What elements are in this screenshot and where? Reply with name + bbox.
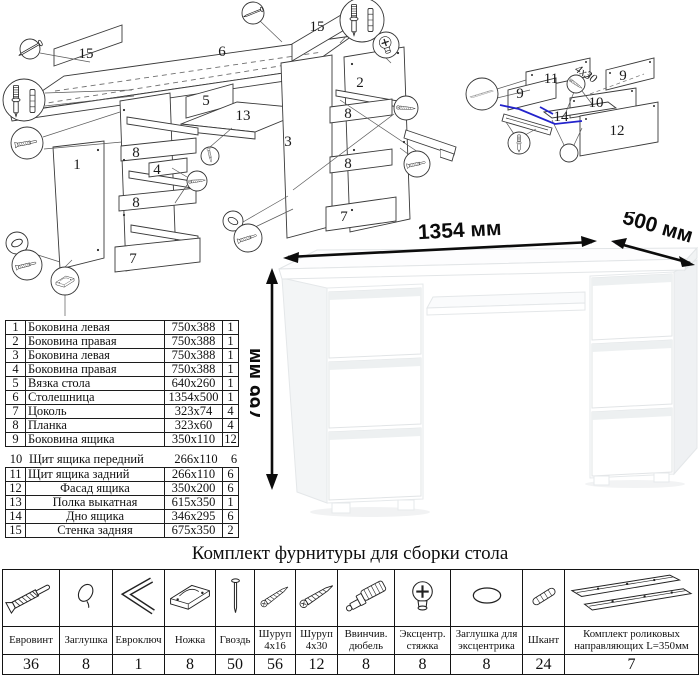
hex-key-icon xyxy=(118,575,160,617)
euro-screw-icon xyxy=(2,574,59,617)
screw-4x30-icon xyxy=(297,579,338,611)
screw-4x16-icon xyxy=(258,581,293,610)
part-qty: 1 xyxy=(223,363,239,377)
table-row: 10 Щит ящика передний 266x110 6 xyxy=(5,452,245,467)
part-name: Фасад ящика xyxy=(26,482,165,496)
table-row: 2Боковина правая750x3881 xyxy=(6,335,239,349)
sleeve-icon xyxy=(368,8,373,31)
screw-dowel-icon xyxy=(339,575,392,615)
hardware-icons-row xyxy=(3,570,699,627)
hardware-name: Евроключ xyxy=(113,627,165,655)
hardware-name: Евровинт xyxy=(3,627,60,655)
hardware-name: Заглушка для эксцентрика xyxy=(451,627,523,655)
part-qty: 6 xyxy=(223,482,239,496)
hardware-icon-cell xyxy=(451,570,523,627)
hardware-qty: 56 xyxy=(255,655,296,675)
part-label-1: 1 xyxy=(73,157,81,173)
table-row: 11Щит ящика задний266x1106 xyxy=(6,468,239,482)
part-size: 615x350 xyxy=(165,496,223,510)
sleeve-icon xyxy=(30,89,35,112)
part-label-14: 14 xyxy=(554,109,570,125)
hardware-name: Шуруп 4x16 xyxy=(255,627,296,655)
hardware-name: Комплект роликовых направляющих L=350мм xyxy=(565,627,699,655)
hardware-kit-table: Евровинт Заглушка Евроключ Ножка Гвоздь … xyxy=(2,569,699,675)
part-number: 2 xyxy=(6,335,26,349)
part-qty: 1 xyxy=(223,321,239,335)
part-label-15b: 15 xyxy=(310,19,325,35)
cap-icon xyxy=(72,580,99,612)
hardware-icon-cell xyxy=(216,570,255,627)
desk-depth-dimension: 500 мм xyxy=(620,212,696,248)
hardware-name: Гвоздь xyxy=(216,627,255,655)
part-name: Планка xyxy=(26,419,165,433)
part-qty: 6 xyxy=(223,468,239,482)
parts-table-upper: 1Боковина левая750x3881 2Боковина правая… xyxy=(5,320,239,447)
assembly-instruction-sheet: 1354 мм 500 мм 766 мм xyxy=(0,0,700,677)
table-row: 14Дно ящика346x2956 xyxy=(6,510,239,524)
hardware-icon-cell xyxy=(565,570,699,627)
part-name: Боковина правая xyxy=(26,335,165,349)
part-name: Щит ящика задний xyxy=(26,468,165,482)
part-label-3: 3 xyxy=(284,134,292,150)
part-qty: 12 xyxy=(223,433,239,447)
part-number: 9 xyxy=(6,433,26,447)
table-row: 13Полка выкатная615x3501 xyxy=(6,496,239,510)
part-name: Боковина правая xyxy=(26,363,165,377)
part-size: 323x60 xyxy=(165,419,223,433)
hardware-icon-cell xyxy=(165,570,216,627)
part-name: Полка выкатная xyxy=(26,496,165,510)
hardware-qty: 8 xyxy=(395,655,451,675)
table-row: 15Стенка задняя675x3502 xyxy=(6,524,239,538)
part-label-10: 10 xyxy=(589,95,604,111)
cam-cap-icon xyxy=(471,585,503,606)
part-label-8c: 8 xyxy=(344,106,352,122)
part-label-6: 6 xyxy=(218,44,226,60)
part-name: Боковина левая xyxy=(26,349,165,363)
part-size: 266x110 xyxy=(167,452,225,467)
part-size: 750x388 xyxy=(165,349,223,363)
part-label-12: 12 xyxy=(610,123,625,139)
table-row: 8Планка323x604 xyxy=(6,419,239,433)
hardware-qty: 36 xyxy=(3,655,60,675)
hardware-icon-cell xyxy=(3,570,60,627)
part-number: 5 xyxy=(6,377,26,391)
part-size: 750x388 xyxy=(165,335,223,349)
nail-icon xyxy=(231,578,240,614)
part-name: Стенка задняя xyxy=(26,524,165,538)
part-size: 266x110 xyxy=(165,468,223,482)
hardware-icon-cell xyxy=(113,570,165,627)
table-row: 5Вязка стола640x2601 xyxy=(6,377,239,391)
table-row: 7Цоколь323x744 xyxy=(6,405,239,419)
part-label-4: 4 xyxy=(153,162,161,178)
hardware-qty: 12 xyxy=(296,655,338,675)
part-label-5: 5 xyxy=(202,93,210,109)
part-name: Вязка стола xyxy=(26,377,165,391)
part-number: 11 xyxy=(6,468,26,482)
hardware-qty: 8 xyxy=(338,655,395,675)
part-label-2: 2 xyxy=(356,75,364,91)
part-qty: 6 xyxy=(223,510,239,524)
part-qty: 1 xyxy=(223,349,239,363)
part-size: 640x260 xyxy=(165,377,223,391)
part-size: 346x295 xyxy=(165,510,223,524)
hardware-name: Шкант xyxy=(523,627,565,655)
part-size: 323x74 xyxy=(165,405,223,419)
desk-height-dimension: 766 мм xyxy=(250,348,265,420)
part-label-9b: 9 xyxy=(619,68,627,84)
part-number: 3 xyxy=(6,349,26,363)
part-name: Цоколь xyxy=(26,405,165,419)
part-name: Дно ящика xyxy=(26,510,165,524)
hardware-qty: 8 xyxy=(451,655,523,675)
hardware-qty: 8 xyxy=(60,655,113,675)
hardware-qty: 24 xyxy=(523,655,565,675)
hardware-icon-cell xyxy=(255,570,296,627)
hardware-qty: 50 xyxy=(216,655,255,675)
hardware-icon-cell xyxy=(60,570,113,627)
part-label-8a: 8 xyxy=(132,145,140,161)
table-row: 3Боковина левая750x3881 xyxy=(6,349,239,363)
part-qty: 2 xyxy=(223,524,239,538)
part-qty: 1 xyxy=(223,377,239,391)
hardware-name: Шуруп 4x30 xyxy=(296,627,338,655)
parts-table-lower: 11Щит ящика задний266x1106 12Фасад ящика… xyxy=(5,467,239,538)
hardware-name: Эксцентр. стяжка xyxy=(395,627,451,655)
table-row: 4Боковина правая750x3881 xyxy=(6,363,239,377)
part-number: 1 xyxy=(6,321,26,335)
part-number: 6 xyxy=(6,391,26,405)
exploded-desk-diagram: 15 6 15 5 13 1 2 3 8 4 8 7 8 8 7 xyxy=(0,0,462,340)
hardware-qty: 8 xyxy=(165,655,216,675)
part-size: 350x110 xyxy=(165,433,223,447)
hardware-icon-cell xyxy=(338,570,395,627)
part-label-8b: 8 xyxy=(132,195,140,211)
table-row: 1Боковина левая750x3881 xyxy=(6,321,239,335)
part-name: Столешница xyxy=(26,391,165,405)
part-name: Боковина левая xyxy=(26,321,165,335)
part-name: Боковина ящика xyxy=(26,433,165,447)
part-label-13: 13 xyxy=(236,108,251,124)
part-qty: 1 xyxy=(223,391,239,405)
callout-circle xyxy=(560,144,578,162)
part-size: 750x388 xyxy=(165,363,223,377)
hardware-icon-cell xyxy=(296,570,338,627)
table-row: 6Столешница1354x5001 xyxy=(6,391,239,405)
part-number: 13 xyxy=(6,496,26,510)
part-number: 4 xyxy=(6,363,26,377)
hardware-name: Ввинчив. дюбель xyxy=(338,627,395,655)
part-number: 7 xyxy=(6,405,26,419)
part-qty: 1 xyxy=(223,496,239,510)
hardware-qty-row: 36 8 1 8 50 56 12 8 8 8 24 7 xyxy=(3,655,699,675)
part-size: 1354x500 xyxy=(165,391,223,405)
part-number: 10 xyxy=(5,452,27,467)
part-number: 14 xyxy=(6,510,26,524)
part-label-9a: 9 xyxy=(516,86,524,102)
hardware-name: Заглушка xyxy=(60,627,113,655)
part-qty: 4 xyxy=(223,419,239,433)
part-label-8d: 8 xyxy=(344,156,352,172)
wood-dowel-icon xyxy=(529,584,559,608)
roller-guides-icon xyxy=(569,573,695,618)
hardware-names-row: Евровинт Заглушка Евроключ Ножка Гвоздь … xyxy=(3,627,699,655)
hardware-icon-cell xyxy=(523,570,565,627)
part-label-11: 11 xyxy=(544,71,558,87)
part-size: 675x350 xyxy=(165,524,223,538)
part-qty: 4 xyxy=(223,405,239,419)
hardware-kit-title: Комплект фурнитуры для сборки стола xyxy=(0,543,700,565)
part-qty: 6 xyxy=(225,452,243,467)
part-label-7a: 7 xyxy=(129,251,137,267)
foot-icon xyxy=(167,581,213,611)
table-row: 12Фасад ящика350x2006 xyxy=(6,482,239,496)
part-name: Щит ящика передний xyxy=(27,452,167,467)
cam-lock-icon xyxy=(409,580,436,612)
part-size: 750x388 xyxy=(165,321,223,335)
hardware-qty: 1 xyxy=(113,655,165,675)
table-row: 9Боковина ящика350x11012 xyxy=(6,433,239,447)
hardware-icon-cell xyxy=(395,570,451,627)
part-number: 15 xyxy=(6,524,26,538)
part-label-7b: 7 xyxy=(340,209,348,225)
part-number: 8 xyxy=(6,419,26,433)
hardware-qty: 7 xyxy=(565,655,699,675)
part-qty: 1 xyxy=(223,335,239,349)
hardware-name: Ножка xyxy=(165,627,216,655)
part-number: 12 xyxy=(6,482,26,496)
part-size: 350x200 xyxy=(165,482,223,496)
part-label-15a: 15 xyxy=(79,46,94,62)
exploded-drawer-diagram: 11 9 9 10 14 12 4x30 xyxy=(440,28,700,208)
